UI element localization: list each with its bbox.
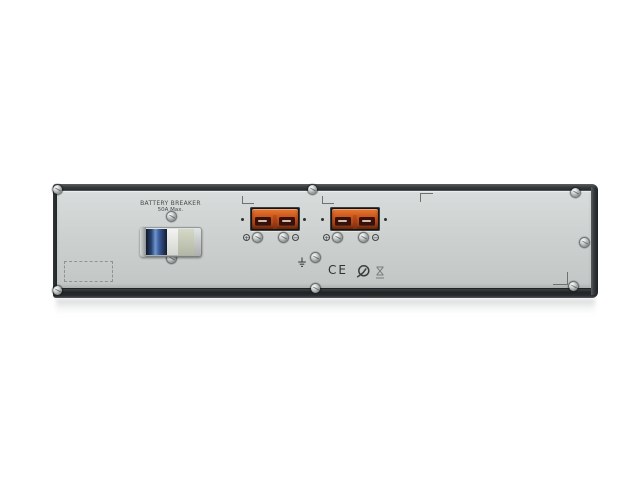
plus-polarity-icon: +: [323, 234, 330, 241]
breaker-label: BATTERY BREAKER 50A Max.: [118, 201, 223, 213]
rivet-dot: [241, 218, 244, 221]
battery-pack-rear-panel: BATTERY BREAKER 50A Max. + −: [53, 184, 598, 298]
screw-icon: [571, 188, 580, 197]
slot-glint: [338, 220, 347, 222]
screw-icon: [569, 282, 578, 291]
connector-screw-icon: [333, 233, 342, 242]
product-photo-canvas: BATTERY BREAKER 50A Max. + −: [0, 0, 640, 480]
connector-screw-icon: [359, 233, 368, 242]
slot-glint: [258, 220, 267, 222]
ground-screw-icon: [311, 253, 320, 262]
plus-polarity-icon: +: [243, 234, 250, 241]
battery-connector-2: [330, 207, 380, 231]
chassis-bottom-rail: [53, 288, 598, 298]
connector-slot: [255, 217, 271, 226]
battery-breaker: [140, 227, 202, 257]
rivet-dot: [303, 218, 306, 221]
connector-slot: [359, 217, 375, 226]
breaker-body-green: [178, 229, 194, 255]
c-tick-mark-icon: [356, 264, 371, 283]
anderson-connector-icon: [252, 209, 298, 229]
ce-mark: CE: [328, 263, 348, 277]
connector-slot: [279, 217, 295, 226]
chassis-right-edge: [591, 187, 598, 295]
corner-mark-icon: [322, 196, 334, 204]
screw-icon: [53, 286, 62, 295]
slot-glint: [362, 220, 371, 222]
breaker-rating: 50A Max.: [118, 207, 223, 213]
slot-glint: [282, 220, 291, 222]
breaker-body-white: [167, 229, 178, 255]
breaker-rocker-blue: [146, 229, 167, 255]
breaker-bracket-right: [194, 227, 202, 257]
minus-polarity-icon: −: [372, 234, 379, 241]
screw-icon: [308, 185, 317, 194]
connector-seam: [353, 215, 357, 229]
anderson-connector-icon: [332, 209, 378, 229]
screw-icon: [580, 238, 589, 247]
corner-mark-icon: [242, 196, 254, 204]
screw-icon: [167, 212, 176, 221]
minus-polarity-icon: −: [292, 234, 299, 241]
corner-mark-icon: [420, 193, 433, 202]
corner-mark-icon: [553, 272, 568, 285]
rivet-dot: [321, 218, 324, 221]
earth-ground-icon: [297, 253, 307, 272]
label-placeholder-box: [64, 261, 113, 282]
chassis-top-rail: [53, 184, 598, 191]
screw-icon: [53, 185, 62, 194]
connector-slot: [335, 217, 351, 226]
battery-connector-1: [250, 207, 300, 231]
hourglass-cert-mark-icon: [375, 265, 385, 284]
connector-screw-icon: [279, 233, 288, 242]
rivet-dot: [384, 218, 387, 221]
screw-icon: [311, 284, 320, 293]
connector-screw-icon: [253, 233, 262, 242]
connector-seam: [273, 215, 277, 229]
floor-reflection: [56, 299, 595, 314]
